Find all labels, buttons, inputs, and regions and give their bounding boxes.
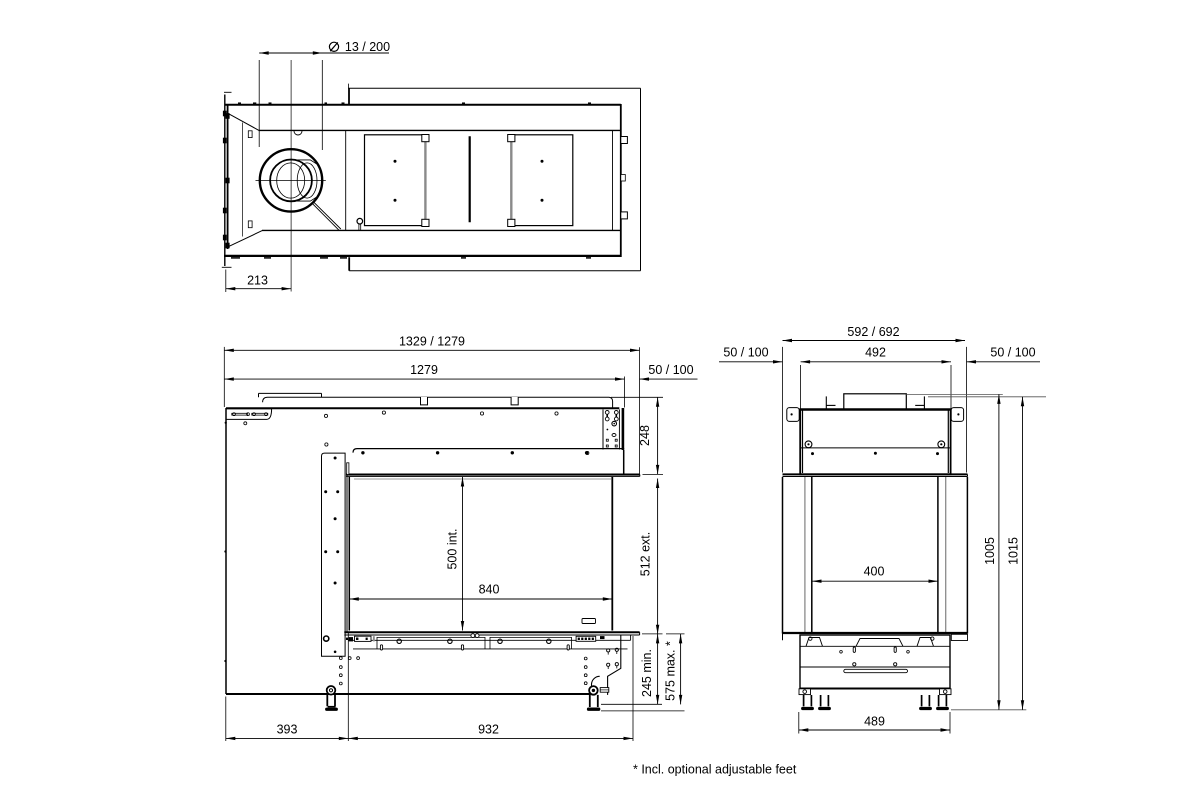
svg-text:213: 213 [247,274,268,288]
svg-text:932: 932 [478,723,499,737]
svg-text:400: 400 [864,565,885,579]
svg-text:575 max. *: 575 max. * [664,641,678,701]
svg-text:840: 840 [479,583,500,597]
svg-text:1015: 1015 [1007,537,1021,565]
svg-text:50 / 100: 50 / 100 [723,346,768,360]
svg-text:1279: 1279 [410,363,438,377]
svg-text:512 ext.: 512 ext. [639,532,653,576]
svg-text:13 / 200: 13 / 200 [345,40,390,54]
svg-text:248: 248 [638,425,652,446]
svg-text:1005: 1005 [983,537,997,565]
svg-text:50 / 100: 50 / 100 [990,346,1035,360]
svg-text:393: 393 [277,723,298,737]
svg-text:50 / 100: 50 / 100 [648,363,693,377]
svg-text:* Incl. optional adjustable fe: * Incl. optional adjustable feet [633,763,797,777]
svg-text:245 min.: 245 min. [640,649,654,697]
svg-text:500 int.: 500 int. [446,528,460,569]
svg-text:492: 492 [865,346,886,360]
svg-text:592 / 692: 592 / 692 [847,325,899,339]
svg-text:489: 489 [864,715,885,729]
svg-text:1329 / 1279: 1329 / 1279 [399,335,465,349]
